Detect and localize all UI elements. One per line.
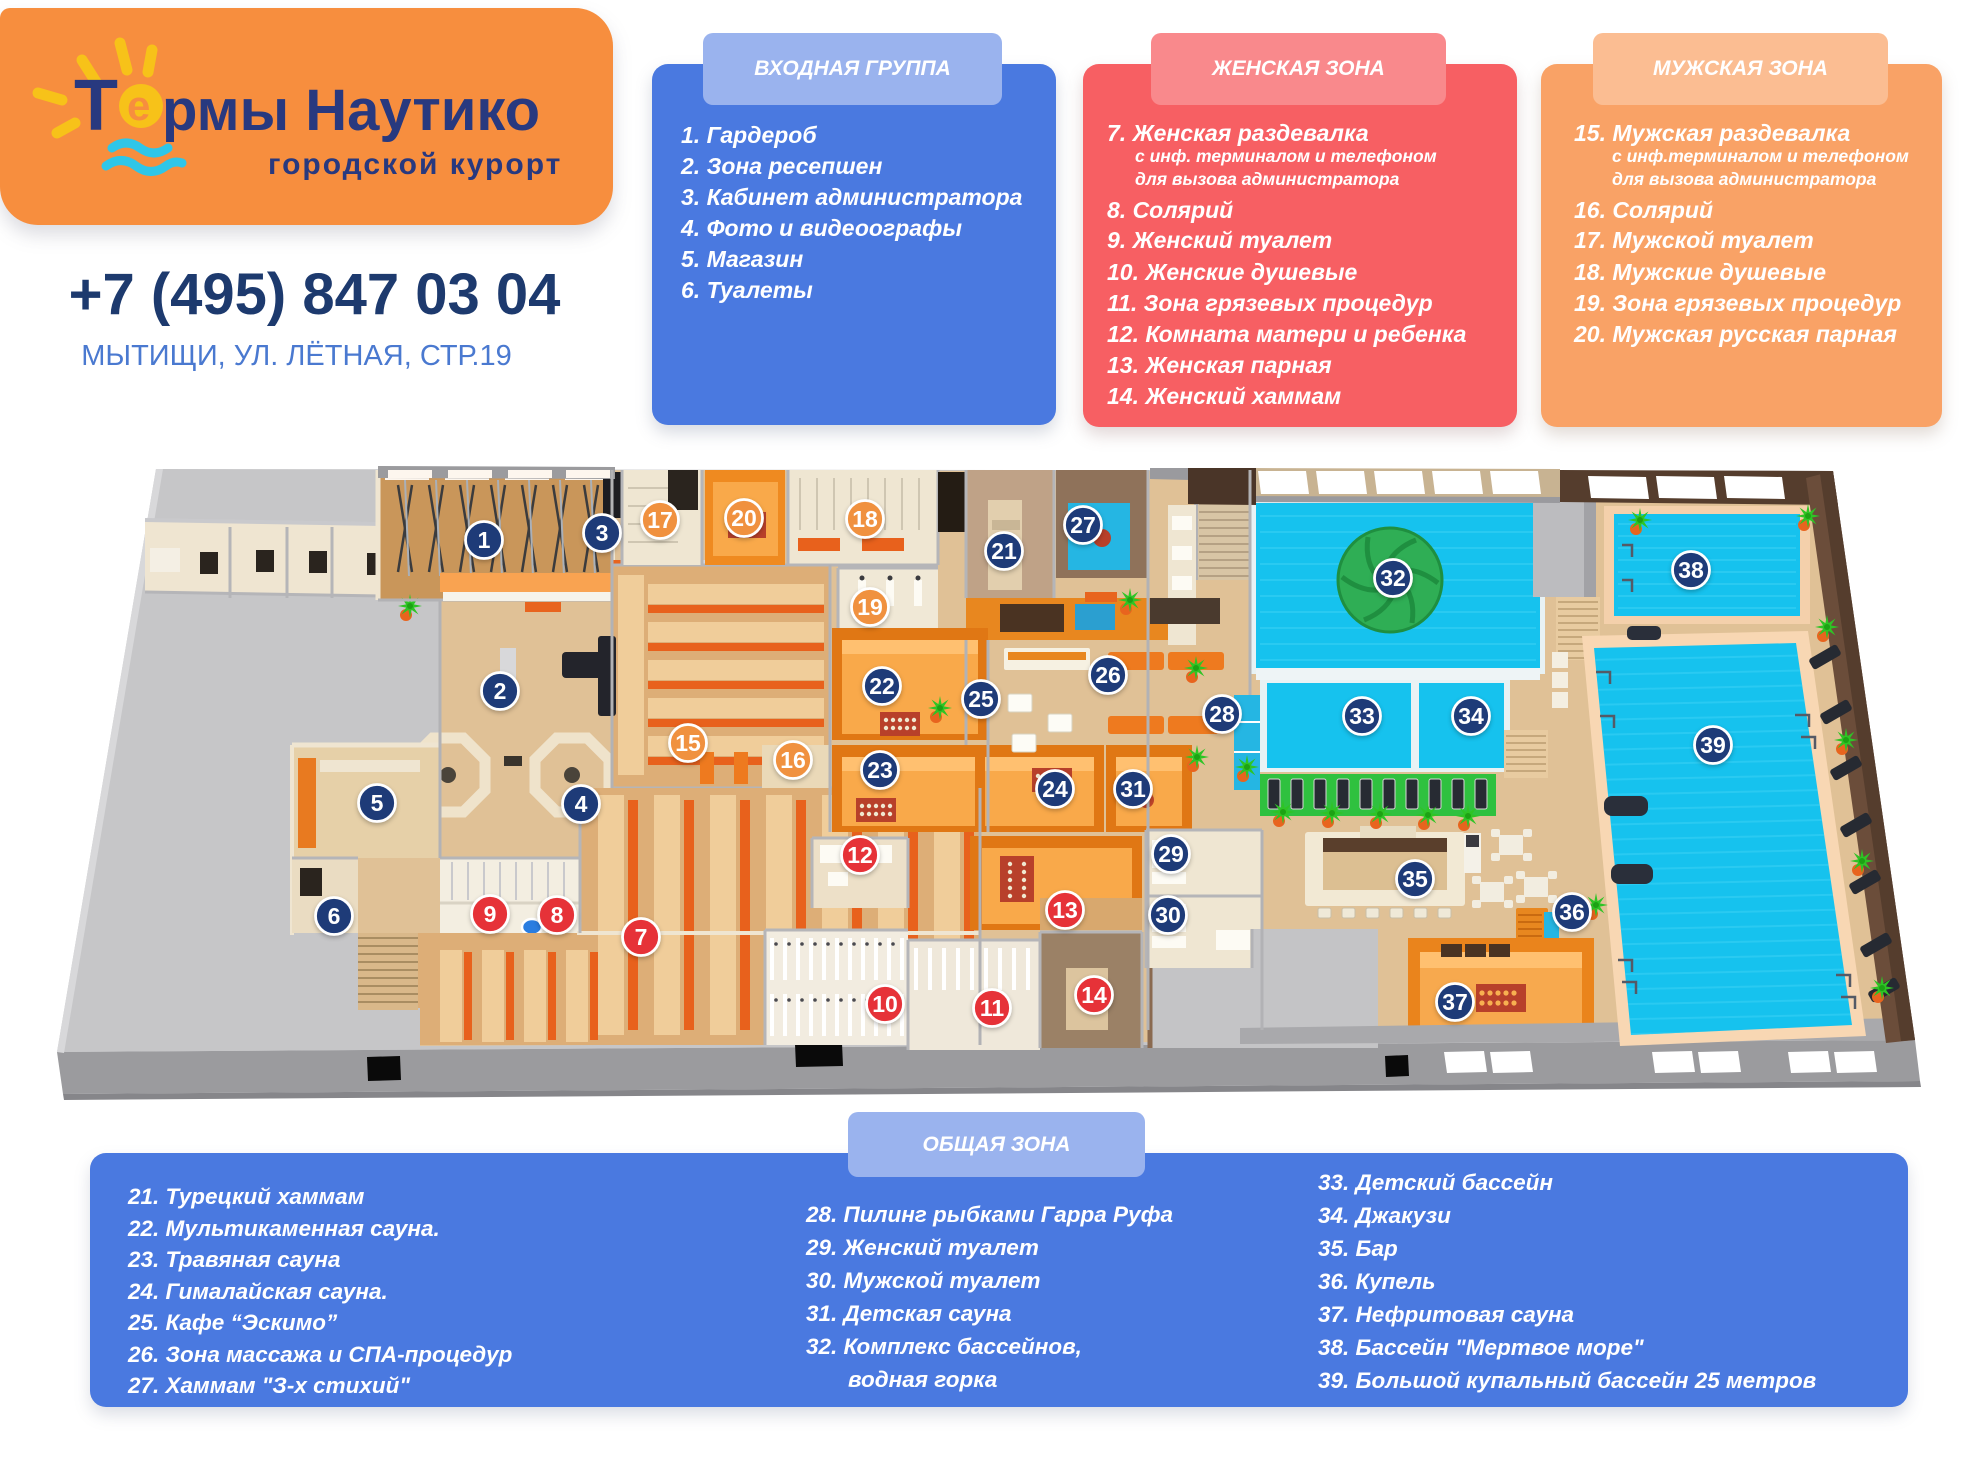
svg-text:23: 23 (867, 757, 893, 783)
svg-text:2: 2 (494, 678, 507, 704)
svg-text:16: 16 (780, 747, 806, 773)
svg-text:18: 18 (852, 506, 878, 532)
svg-text:32: 32 (1380, 565, 1406, 591)
svg-text:29: 29 (1158, 841, 1184, 867)
svg-text:5: 5 (371, 790, 384, 816)
svg-text:36: 36 (1559, 899, 1585, 925)
svg-text:27: 27 (1070, 512, 1096, 538)
svg-text:7: 7 (635, 924, 648, 950)
svg-text:22: 22 (869, 673, 895, 699)
svg-text:25: 25 (968, 686, 994, 712)
svg-text:28: 28 (1209, 701, 1235, 727)
svg-text:20: 20 (731, 505, 757, 531)
svg-text:11: 11 (980, 995, 1005, 1021)
svg-text:17: 17 (647, 507, 673, 533)
svg-text:6: 6 (328, 903, 341, 929)
svg-text:10: 10 (872, 991, 898, 1017)
svg-text:19: 19 (857, 594, 883, 620)
svg-text:30: 30 (1155, 902, 1181, 928)
svg-text:14: 14 (1081, 982, 1107, 1008)
svg-text:39: 39 (1700, 732, 1726, 758)
svg-text:13: 13 (1052, 897, 1078, 923)
svg-text:38: 38 (1678, 557, 1704, 583)
svg-text:24: 24 (1042, 776, 1068, 802)
svg-text:31: 31 (1120, 776, 1146, 802)
svg-text:1: 1 (478, 527, 491, 553)
svg-text:21: 21 (991, 538, 1017, 564)
svg-text:15: 15 (675, 730, 701, 756)
svg-text:12: 12 (847, 842, 873, 868)
svg-text:37: 37 (1442, 989, 1468, 1015)
svg-text:34: 34 (1458, 703, 1484, 729)
svg-text:4: 4 (575, 791, 588, 817)
svg-text:26: 26 (1095, 662, 1121, 688)
svg-text:35: 35 (1402, 866, 1428, 892)
svg-text:9: 9 (484, 901, 497, 927)
svg-text:3: 3 (596, 520, 609, 546)
svg-text:8: 8 (551, 902, 564, 928)
svg-text:33: 33 (1349, 703, 1375, 729)
